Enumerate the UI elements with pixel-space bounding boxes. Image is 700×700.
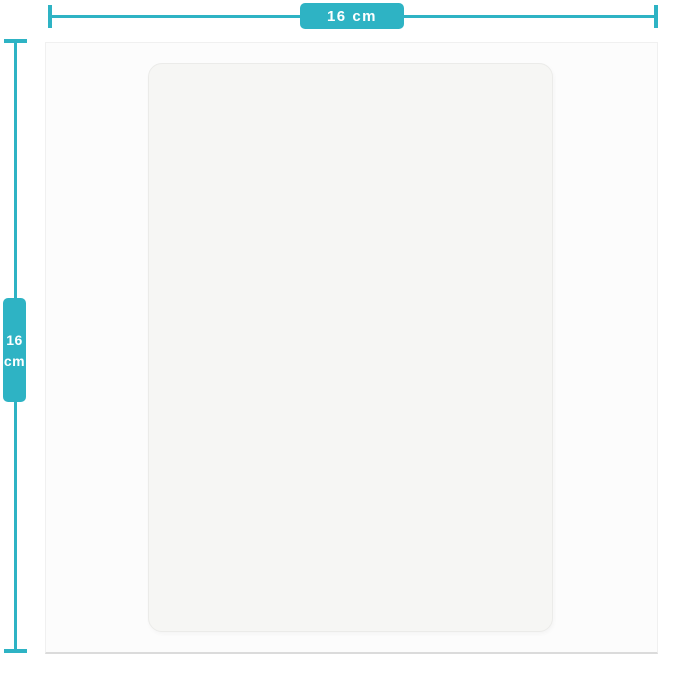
- height-dimension-unit: cm: [4, 354, 25, 368]
- width-dimension-value: 16 cm: [327, 8, 377, 25]
- width-dimension-tick-left: [48, 5, 52, 28]
- width-dimension-label: 16 cm: [300, 3, 404, 29]
- product-photo: [45, 42, 658, 654]
- width-dimension-tick-right: [654, 5, 658, 28]
- product-sheet: [148, 63, 553, 632]
- height-dimension-tick-bottom: [4, 649, 27, 653]
- height-dimension-label: 16 cm: [3, 298, 26, 402]
- height-dimension-tick-top: [4, 39, 27, 43]
- height-dimension-value: 16: [6, 333, 23, 347]
- dimension-diagram: 16 cm 16 cm: [0, 0, 700, 700]
